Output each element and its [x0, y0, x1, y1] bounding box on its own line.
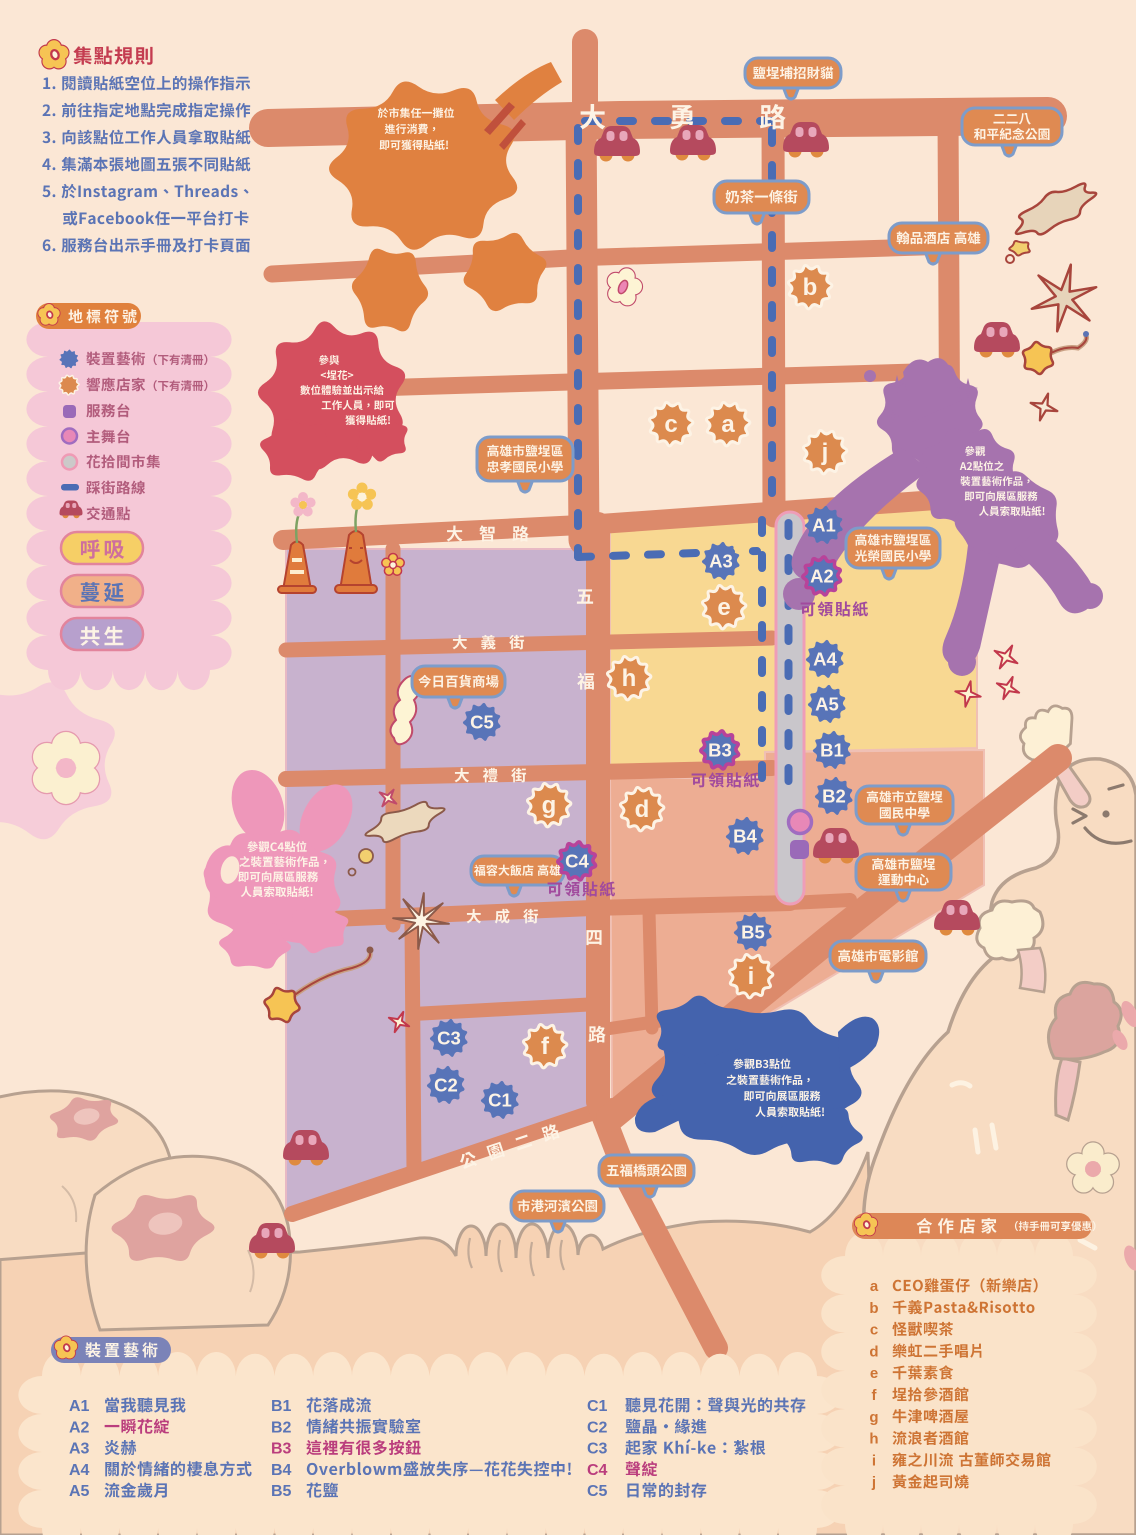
svg-text:B3: B3 [708, 740, 732, 761]
svg-text:B3: B3 [271, 1441, 292, 1458]
svg-text:A3: A3 [709, 551, 733, 572]
svg-text:A1: A1 [69, 1398, 90, 1415]
svg-text:A4: A4 [69, 1462, 90, 1479]
svg-text:j: j [871, 1474, 876, 1491]
svg-text:d: d [869, 1343, 878, 1360]
svg-text:C5: C5 [587, 1483, 608, 1500]
svg-text:C5: C5 [470, 712, 494, 733]
svg-text:A1: A1 [812, 515, 836, 536]
svg-text:B4: B4 [271, 1462, 292, 1479]
svg-text:C1: C1 [587, 1398, 608, 1415]
svg-text:C3: C3 [587, 1441, 608, 1458]
svg-text:e: e [717, 594, 730, 621]
svg-text:h: h [869, 1431, 878, 1448]
svg-text:B5: B5 [741, 922, 765, 943]
svg-text:A3: A3 [69, 1441, 90, 1458]
svg-text:B4: B4 [733, 826, 757, 847]
svg-text:g: g [869, 1409, 878, 1426]
svg-text:f: f [541, 1033, 550, 1060]
svg-text:A2: A2 [810, 566, 834, 587]
svg-text:B1: B1 [271, 1398, 292, 1415]
svg-text:c: c [664, 411, 677, 438]
svg-text:A5: A5 [69, 1483, 90, 1500]
svg-text:j: j [821, 439, 829, 466]
svg-text:g: g [542, 792, 557, 819]
svg-text:B2: B2 [271, 1419, 292, 1436]
svg-text:a: a [870, 1278, 879, 1295]
svg-text:h: h [622, 665, 637, 692]
svg-text:C4: C4 [565, 851, 589, 872]
svg-text:c: c [870, 1322, 878, 1339]
svg-text:C1: C1 [488, 1090, 512, 1111]
svg-text:C3: C3 [437, 1028, 461, 1049]
svg-text:d: d [635, 796, 650, 823]
svg-text:i: i [872, 1452, 876, 1469]
svg-text:B2: B2 [822, 786, 846, 807]
svg-text:b: b [869, 1300, 878, 1317]
svg-text:a: a [721, 411, 735, 438]
svg-text:A5: A5 [815, 694, 839, 715]
svg-text:i: i [748, 963, 755, 990]
svg-text:A2: A2 [69, 1419, 90, 1436]
svg-text:e: e [870, 1365, 878, 1382]
svg-text:C4: C4 [587, 1462, 608, 1479]
svg-text:A4: A4 [813, 649, 837, 670]
svg-text:B1: B1 [820, 740, 844, 761]
svg-text:B5: B5 [271, 1483, 292, 1500]
svg-text:C2: C2 [587, 1419, 608, 1436]
svg-text:b: b [803, 274, 818, 301]
svg-text:C2: C2 [434, 1075, 458, 1096]
